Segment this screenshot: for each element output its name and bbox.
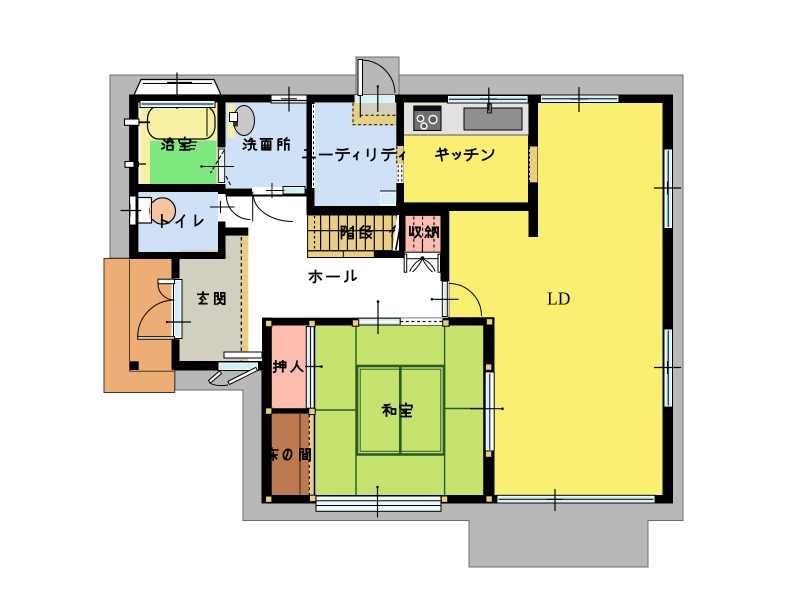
svg-text:LD: LD <box>547 289 570 309</box>
